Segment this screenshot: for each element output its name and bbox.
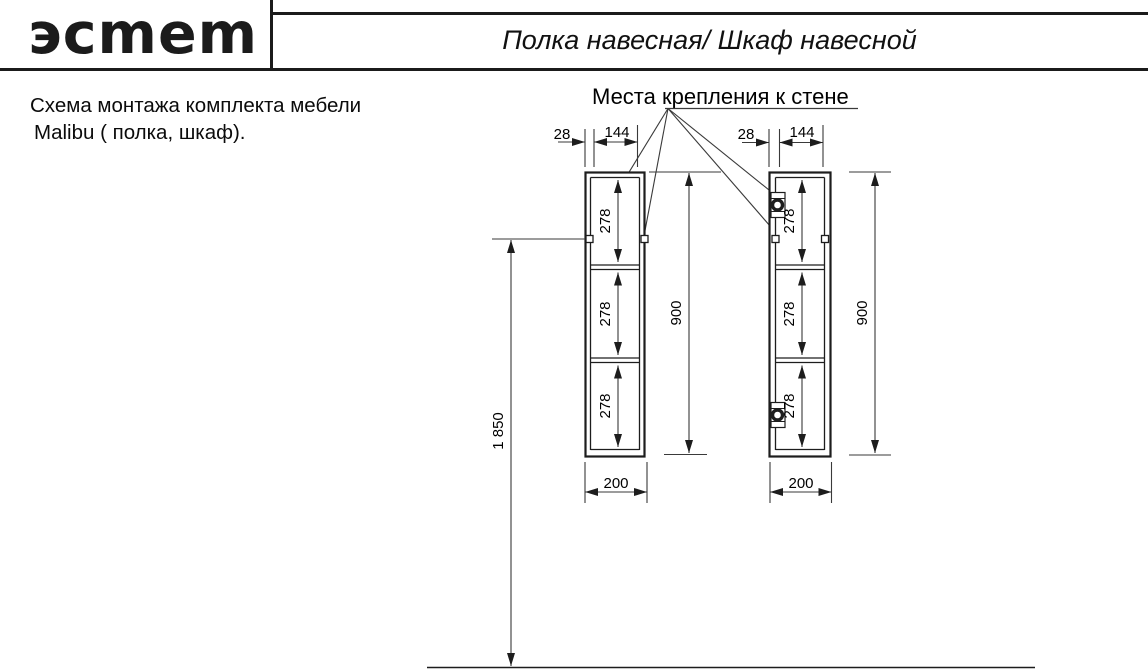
page: { "header": { "logo": "эсmem", "title": … [0,0,1148,670]
callout-label: Места крепления к стене [592,84,849,109]
dim-width-left-unit: 200 [585,462,647,503]
dim-top-left-unit: 28 144 [554,124,638,167]
dim-spacing-label: 144 [604,124,629,141]
wall-fastener-icon [586,236,593,243]
dim-width-label: 200 [788,475,813,492]
dim-width-label: 200 [603,475,628,492]
dim-height-right-unit: 900 [849,172,891,455]
dim-section-label: 278 [597,393,614,418]
shelf-unit [586,173,649,457]
dim-width-right-unit: 200 [770,462,832,503]
dim-section-label: 278 [597,301,614,326]
shelf-outline [586,173,645,457]
dim-section-label: 278 [781,208,798,233]
dim-section-label: 278 [597,208,614,233]
wall-fastener-icon [772,236,779,243]
dim-mount-height: 1 850 [490,239,585,666]
dim-section-label: 278 [781,301,798,326]
dim-offset-label: 28 [554,126,571,143]
dim-mount-height-label: 1 850 [490,412,507,450]
wall-fastener-icon [641,236,648,243]
dim-spacing-label: 144 [789,124,814,141]
dim-height-label: 900 [668,300,685,325]
dim-top-right-unit: 28 144 [738,124,823,167]
dim-offset-label: 28 [738,126,755,143]
assembly-drawing: Места крепления к стене [0,0,1148,670]
dim-height-left-unit: 900 [649,172,721,455]
wall-fastener-icon [822,236,829,243]
dim-height-label: 900 [854,300,871,325]
dim-section-label: 278 [781,393,798,418]
cabinet-unit [770,173,831,457]
